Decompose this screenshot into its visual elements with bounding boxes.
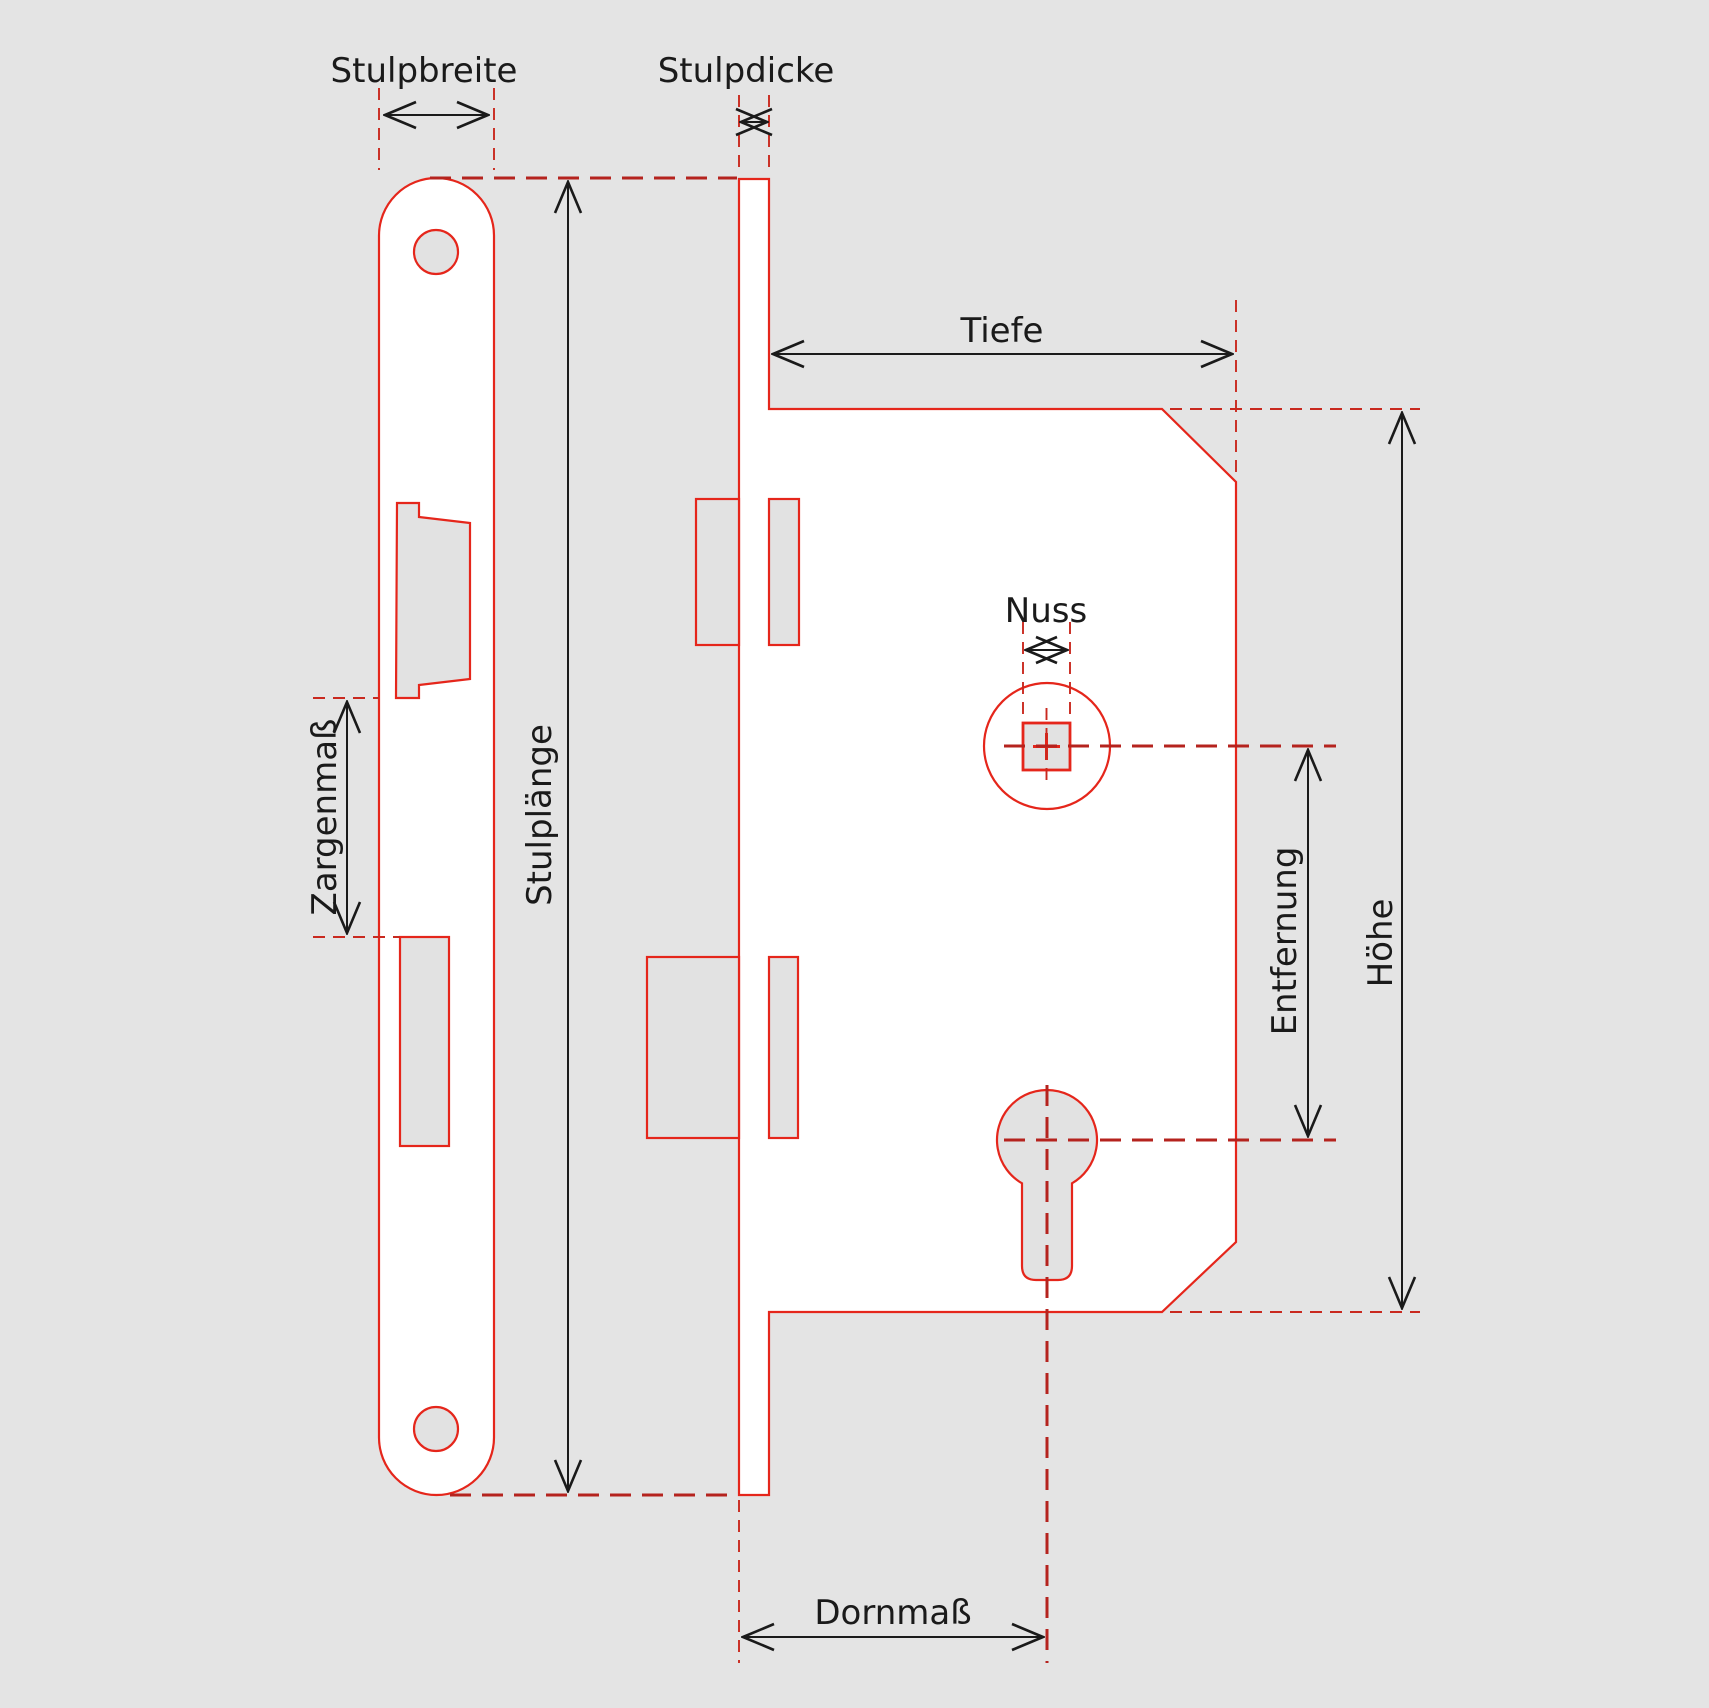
screw-hole-bottom <box>414 1407 458 1451</box>
deadbolt-rear <box>769 957 798 1138</box>
lock-dimension-drawing: Stulpbreite Stulpdicke Tiefe Nuss Dornma… <box>0 0 1709 1708</box>
dim-label-zargenmass: Zargenmaß <box>305 719 345 916</box>
faceplate-strip-and-case-outline <box>739 179 1236 1495</box>
dim-label-tiefe: Tiefe <box>960 311 1044 351</box>
dim-label-dornmass: Dornmaß <box>814 1593 971 1633</box>
dim-label-stulpdicke: Stulpdicke <box>658 51 835 91</box>
dim-label-stulplaenge: Stulplänge <box>520 724 560 906</box>
dim-label-entfernung: Entfernung <box>1265 847 1305 1036</box>
dim-label-nuss: Nuss <box>1005 591 1087 631</box>
lock-body-view <box>647 179 1236 1495</box>
faceplate-outline <box>379 178 494 1495</box>
latch-bolt-rear <box>769 499 799 645</box>
deadbolt-front <box>647 957 739 1138</box>
faceplate-front-view <box>379 178 494 1495</box>
screw-hole-top <box>414 230 458 274</box>
dim-label-hoehe: Höhe <box>1361 899 1401 988</box>
deadbolt-cutout <box>400 937 449 1146</box>
latch-cutout <box>396 503 470 698</box>
dim-label-stulpbreite: Stulpbreite <box>331 51 518 91</box>
latch-bolt-front <box>696 499 739 645</box>
diagram-canvas: Stulpbreite Stulpdicke Tiefe Nuss Dornma… <box>0 0 1709 1708</box>
